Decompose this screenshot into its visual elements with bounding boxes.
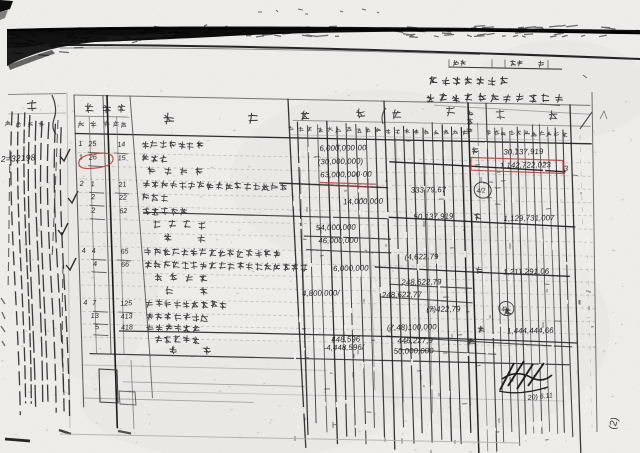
svg-text:418: 418	[121, 323, 134, 332]
svg-text:1,444,444,66: 1,444,444,66	[507, 326, 555, 336]
svg-text:62: 62	[119, 207, 128, 215]
svg-text:1,211,291,06: 1,211,291,06	[503, 267, 550, 277]
svg-text:(4,622,79: (4,622,79	[404, 252, 439, 262]
svg-text:2: 2	[78, 179, 84, 188]
svg-text:63,000,000·00: 63,000,000·00	[320, 170, 373, 180]
svg-text:2: 2	[90, 206, 96, 215]
svg-text:13: 13	[90, 311, 99, 320]
svg-text:4/2: 4/2	[476, 187, 486, 195]
svg-text:(30,000,000): (30,000,000)	[318, 157, 364, 167]
svg-text:1,129,731,007: 1,129,731,007	[503, 213, 555, 223]
svg-text:22: 22	[118, 193, 128, 201]
svg-text:50,000,000: 50,000,000	[393, 346, 434, 356]
svg-text:4,800,000/: 4,800,000/	[302, 288, 341, 298]
svg-text:46,000,000: 46,000,000	[318, 236, 359, 246]
svg-text:50,137,919: 50,137,919	[413, 212, 454, 222]
svg-text:65: 65	[120, 247, 129, 255]
svg-text:15: 15	[117, 154, 126, 162]
svg-text:(7,48)100,000: (7,48)100,000	[387, 322, 438, 332]
svg-text:66: 66	[121, 260, 130, 268]
svg-text:248,622,79: 248,622,79	[400, 277, 442, 287]
svg-text:6,000,000·00: 6,000,000·00	[319, 143, 367, 153]
svg-text:125: 125	[120, 299, 133, 308]
svg-text:248,622,77: 248,622,77	[381, 290, 423, 300]
svg-text:446,227,9: 446,227,9	[397, 336, 434, 346]
svg-text:6,000,000: 6,000,000	[333, 264, 370, 274]
svg-text:(7)422,79: (7)422,79	[426, 304, 461, 314]
svg-text:413: 413	[120, 312, 133, 321]
svg-text:4): 4)	[501, 306, 508, 313]
svg-text:14,000,000: 14,000,000	[343, 197, 384, 207]
svg-text:1,142,722,023: 1,142,722,023	[500, 160, 552, 170]
svg-text:30,137,919: 30,137,919	[503, 147, 544, 157]
svg-text:2: 2	[90, 192, 96, 201]
svg-text:54,000,000: 54,000,000	[316, 223, 357, 233]
svg-text:21: 21	[117, 180, 127, 188]
svg-text:14: 14	[117, 140, 126, 148]
svg-text:-4,448,596/: -4,448,596/	[323, 343, 365, 353]
svg-text:333,79,67: 333,79,67	[410, 185, 447, 195]
